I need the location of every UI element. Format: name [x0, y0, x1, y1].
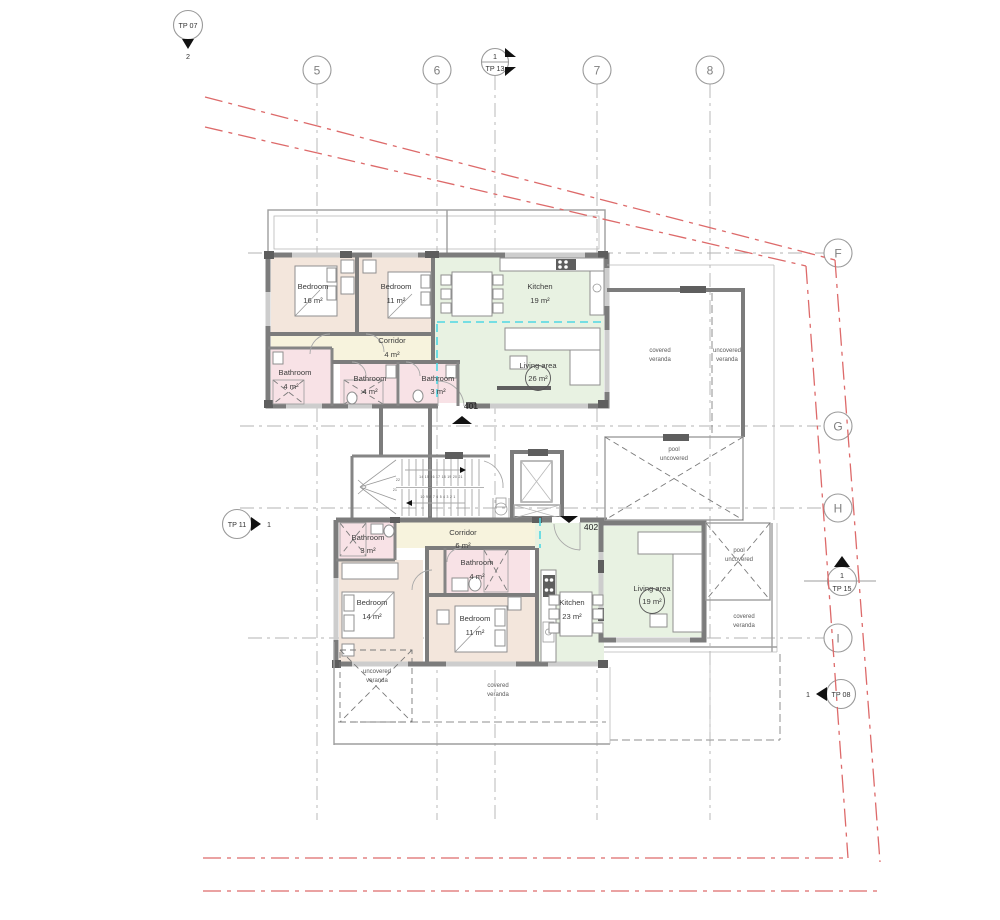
veranda-label: veranda — [649, 357, 671, 363]
marker-tp11-num: 1 — [267, 520, 271, 529]
wall-joint — [264, 251, 274, 259]
core-stairs-elevator: 14 15 16 17 18 19 20 21 10 9 8 7 6 5 4 3… — [352, 408, 562, 520]
pool-label: pool — [668, 447, 679, 453]
wall-joint — [264, 400, 273, 408]
grid-label-H: H — [834, 502, 843, 516]
pillow — [495, 609, 505, 626]
chair — [593, 595, 603, 605]
wall-joint — [390, 517, 400, 523]
elevator-header — [528, 449, 548, 456]
marker-tp11-label: TP 11 — [228, 520, 247, 529]
chair — [493, 275, 503, 285]
marker-tp15-num: 1 — [840, 571, 844, 580]
veranda-label: covered — [649, 348, 670, 354]
veranda-label: veranda — [733, 623, 755, 629]
wall-joint — [680, 286, 706, 293]
entry-arrow-401 — [452, 416, 472, 424]
grid-label-5: 5 — [314, 64, 321, 78]
marker-tp08-num: 1 — [806, 690, 810, 699]
chair — [549, 609, 559, 619]
pool-label: pool — [733, 548, 744, 554]
veranda-label: uncovered — [713, 348, 741, 354]
parapet-inner — [274, 216, 599, 249]
door-arc-core — [484, 461, 503, 488]
wardrobe — [363, 260, 376, 273]
stove — [543, 575, 555, 597]
veranda-label: covered — [487, 683, 508, 689]
chair — [441, 303, 451, 313]
pool-label: uncovered — [660, 456, 688, 462]
room-label: Kitchen — [527, 282, 552, 291]
pillow — [344, 595, 354, 611]
room-area: 4 m² — [469, 572, 485, 581]
boundary-diagonal-1 — [205, 97, 835, 260]
room-area: 11 m² — [466, 628, 485, 637]
room-area: 23 m² — [562, 612, 582, 621]
apartment-401: Bedroom 16 m² Bedroom 11 m² Kitchen 19 m… — [264, 210, 608, 424]
wardrobe — [342, 563, 398, 579]
grid-label-8: 8 — [707, 64, 714, 78]
marker-tp13-label: TP 13 — [485, 64, 504, 73]
chair — [441, 289, 451, 299]
room-area: 19 m² — [530, 296, 550, 305]
veranda-label: uncovered — [363, 669, 391, 675]
veranda-label: covered — [733, 614, 754, 620]
chair — [593, 609, 603, 619]
marker-tp08-label: TP 08 — [831, 690, 850, 699]
toilet — [413, 390, 423, 402]
burner — [558, 260, 562, 264]
toilet — [384, 525, 394, 537]
grid-label-F: F — [834, 247, 841, 261]
grid-label-I: I — [836, 632, 839, 646]
wall-joint — [425, 251, 439, 258]
wall-joint — [340, 251, 352, 258]
wardrobe — [508, 597, 521, 610]
marker-tp13-arrow — [505, 67, 516, 76]
sofa-arm — [570, 350, 600, 385]
stair-numbers-down: 10 9 8 7 6 5 4 3 2 1 — [420, 495, 455, 499]
grid-layer: 5 6 7 8 F G H I — [240, 56, 852, 820]
side-table — [650, 614, 667, 627]
pool-label: uncovered — [725, 557, 753, 563]
room-area: 19 m² — [642, 597, 662, 606]
room-area: 16 m² — [303, 296, 323, 305]
room-label: Bedroom — [357, 598, 388, 607]
sink — [273, 352, 283, 364]
chair — [549, 623, 559, 633]
chair — [493, 289, 503, 299]
veranda-label: veranda — [366, 678, 388, 684]
burner — [564, 260, 568, 264]
room-label: Corridor — [378, 336, 406, 345]
room-label: Bathroom — [279, 368, 312, 377]
sofa-back — [505, 328, 600, 350]
marker-tp15-label: TP 15 — [832, 584, 851, 593]
room-area: 4 m² — [283, 382, 299, 391]
room-area: 11 m² — [387, 296, 406, 305]
marker-tp11-arrow — [251, 517, 261, 531]
marker-tp07-label: TP 07 — [178, 21, 197, 30]
chair — [593, 623, 603, 633]
toilet — [347, 392, 357, 404]
boundary-diagonal-2 — [205, 127, 806, 266]
room-label: Bathroom — [422, 374, 455, 383]
burner — [545, 588, 549, 592]
burner — [564, 265, 568, 269]
wall-joint — [598, 400, 608, 408]
wardrobe — [437, 610, 449, 624]
room-label: Bedroom — [460, 614, 491, 623]
wall-joint — [445, 452, 463, 459]
grid-label-7: 7 — [594, 64, 601, 78]
room-label: Bedroom — [298, 282, 329, 291]
sofa-arm — [673, 554, 702, 632]
grid-label-6: 6 — [434, 64, 441, 78]
room-area: 3 m² — [430, 387, 446, 396]
veranda-label: veranda — [716, 357, 738, 363]
stair-treads — [358, 459, 484, 516]
grid-label-G: G — [833, 420, 842, 434]
wardrobe — [341, 277, 354, 294]
room-area: 26 m² — [528, 374, 548, 383]
marker-tp07-arrow — [182, 39, 194, 49]
room-label: Corridor — [449, 528, 477, 537]
room-area: 14 m² — [362, 612, 382, 621]
room-area: 6 m² — [455, 541, 471, 550]
marker-tp07-num: 2 — [186, 52, 190, 61]
room-label: Bathroom — [354, 374, 387, 383]
sofa-back — [638, 532, 702, 554]
marker-tp13-num: 1 — [493, 52, 497, 61]
pillow — [327, 268, 336, 282]
wall-joint — [663, 434, 689, 441]
stair-number-21: 21 — [393, 488, 397, 492]
apartment-number-401: 401 — [464, 401, 479, 411]
sink — [386, 365, 396, 378]
pillow — [344, 615, 354, 631]
wardrobe — [341, 260, 354, 273]
room-label: Bathroom — [461, 558, 494, 567]
room-label: Kitchen — [559, 598, 584, 607]
dining-table — [452, 272, 492, 316]
kitchen-counter — [500, 258, 604, 271]
chair — [493, 303, 503, 313]
marker-tp08-arrow — [816, 687, 827, 701]
room-area: 4 m² — [362, 387, 378, 396]
room-label: Bathroom — [352, 533, 385, 542]
chair — [441, 275, 451, 285]
apartment-number-402: 402 — [584, 522, 599, 532]
room-area: 3 m² — [360, 546, 376, 555]
sink — [452, 578, 468, 591]
pillow — [421, 292, 430, 305]
parapet-strip — [268, 210, 605, 255]
floor-plan-drawing: 5 6 7 8 F G H I — [0, 0, 1000, 920]
pillow — [495, 630, 505, 646]
burner — [550, 578, 554, 582]
stair-number-22: 22 — [396, 478, 400, 482]
kitchen-counter — [590, 271, 604, 315]
burner — [545, 578, 549, 582]
chair — [549, 595, 559, 605]
wall-joint — [598, 660, 608, 668]
room-label: Bedroom — [381, 282, 412, 291]
pillow — [421, 275, 430, 288]
stair-numbers-up: 14 15 16 17 18 19 20 21 — [419, 475, 463, 479]
burner — [558, 265, 562, 269]
window-frame — [598, 560, 604, 573]
veranda-label: veranda — [487, 692, 509, 698]
burner — [550, 588, 554, 592]
marker-tp15-arrow — [834, 556, 850, 567]
apartment-402: Bathroom 3 m² Corridor 6 m² Bathroom 4 m… — [332, 516, 704, 668]
marker-tp13-arrow — [505, 48, 516, 57]
room-area: 4 m² — [384, 350, 400, 359]
